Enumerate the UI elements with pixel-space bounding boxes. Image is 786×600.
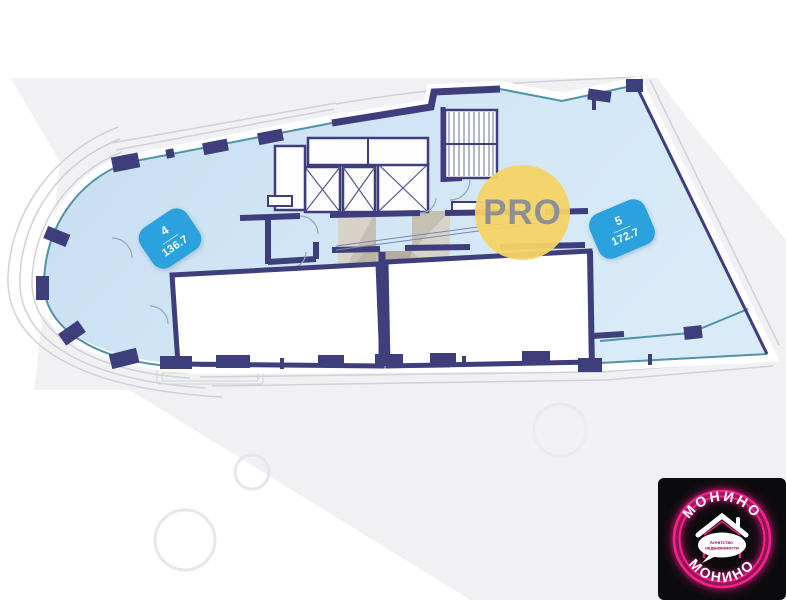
house-icon: Агентство недвижимости <box>698 516 746 563</box>
unit-number: 4 <box>159 224 172 239</box>
staircase <box>443 107 497 182</box>
monino-bubble-text: Агентство недвижимости <box>705 540 739 551</box>
faint-watermark-circles <box>155 404 586 570</box>
white-rooms <box>172 251 624 372</box>
elevator-shafts <box>305 164 428 212</box>
unit-number: 5 <box>613 214 624 229</box>
unit-area: 172.7 <box>610 226 641 248</box>
monino-logo: МОНИНО МОНИНО Агентство недвижимости <box>658 478 786 600</box>
pro-logo-text: PRO <box>483 193 562 233</box>
monino-logo-art: МОНИНО МОНИНО Агентство недвижимости <box>658 478 786 600</box>
floorplan-image: 4 136.7 5 172.7 PRO МОНИНО МОНИНО <box>0 0 786 600</box>
pro-logo: PRO <box>475 165 570 260</box>
